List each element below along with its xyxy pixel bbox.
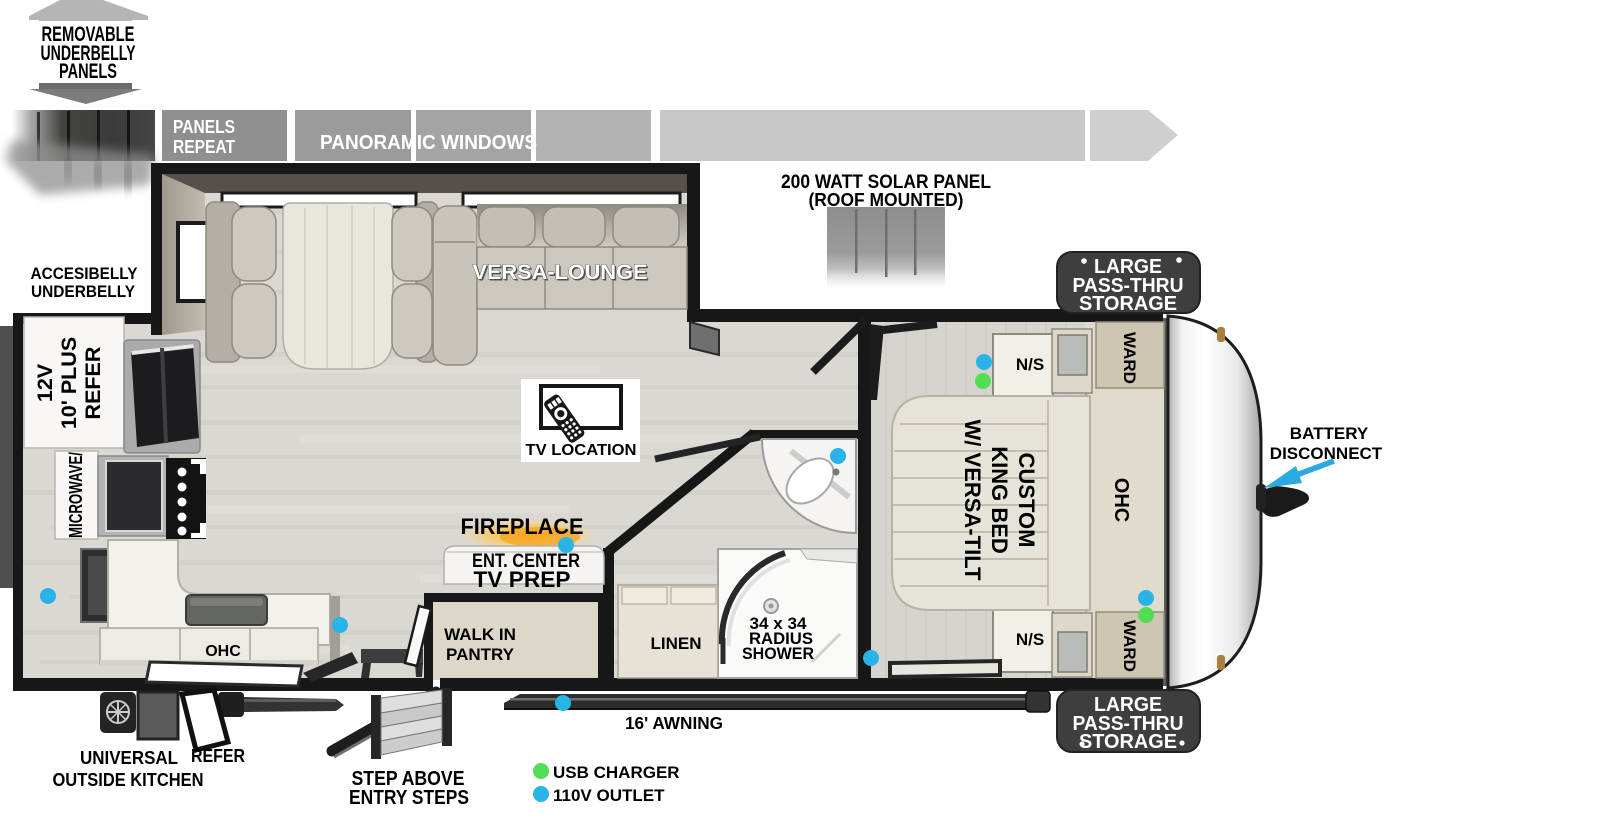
svg-text:REFER: REFER [191,746,245,766]
svg-text:DISCONNECT: DISCONNECT [1270,444,1383,463]
svg-text:OHC: OHC [205,643,241,660]
svg-text:ENTRY STEPS: ENTRY STEPS [349,787,469,809]
svg-text:SHOWER: SHOWER [742,644,814,663]
svg-text:ACCESIBELLY: ACCESIBELLY [31,264,139,283]
svg-text:16' AWNING: 16' AWNING [625,713,723,733]
svg-text:REPEAT: REPEAT [173,137,235,157]
svg-text:PANORAMIC WINDOWS: PANORAMIC WINDOWS [320,132,537,154]
svg-text:WARD: WARD [1120,620,1139,672]
svg-text:STORAGE: STORAGE [1079,293,1177,315]
svg-text:PANELS: PANELS [59,60,117,83]
svg-text:10' PLUS: 10' PLUS [57,337,81,429]
svg-text:BATTERY: BATTERY [1290,424,1369,443]
svg-text:N/S: N/S [1016,355,1044,374]
svg-text:REFER: REFER [81,346,105,419]
svg-text:WALK IN: WALK IN [444,625,516,644]
svg-text:UNIVERSAL: UNIVERSAL [80,748,178,768]
svg-text:N/S: N/S [1016,630,1044,649]
svg-text:W/ VERSA-TILT: W/ VERSA-TILT [960,420,985,581]
svg-text:12V: 12V [33,363,57,402]
svg-text:TV LOCATION: TV LOCATION [526,442,637,459]
svg-text:PANELS: PANELS [173,117,235,137]
svg-text:LINEN: LINEN [651,634,702,653]
svg-text:FIREPLACE: FIREPLACE [461,514,584,539]
svg-text:OUTSIDE KITCHEN: OUTSIDE KITCHEN [53,770,204,790]
svg-text:WARD: WARD [1120,332,1139,384]
svg-text:PANTRY: PANTRY [446,645,515,664]
svg-text:TV PREP: TV PREP [474,567,571,592]
svg-text:VERSA-LOUNGE: VERSA-LOUNGE [473,261,648,284]
svg-text:STORAGE: STORAGE [1079,731,1177,753]
svg-text:USB CHARGER: USB CHARGER [553,763,680,782]
svg-text:110V OUTLET: 110V OUTLET [553,786,665,805]
svg-text:MICROWAVE/: MICROWAVE/ [66,452,86,538]
svg-text:CUSTOM: CUSTOM [1014,453,1039,548]
svg-text:KING BED: KING BED [987,446,1012,554]
svg-text:UNDERBELLY: UNDERBELLY [31,282,136,301]
svg-text:OHC: OHC [1110,478,1132,522]
